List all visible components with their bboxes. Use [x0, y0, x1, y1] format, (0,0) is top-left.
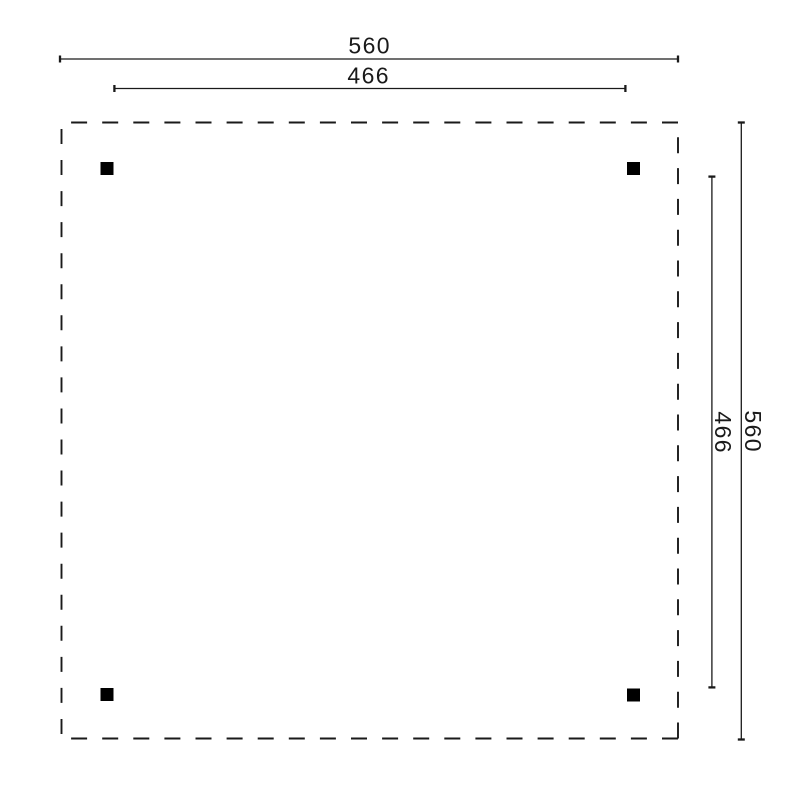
svg-text:560: 560 — [348, 33, 391, 59]
svg-text:466: 466 — [347, 63, 390, 89]
svg-text:560: 560 — [740, 410, 766, 453]
svg-text:466: 466 — [710, 411, 736, 454]
